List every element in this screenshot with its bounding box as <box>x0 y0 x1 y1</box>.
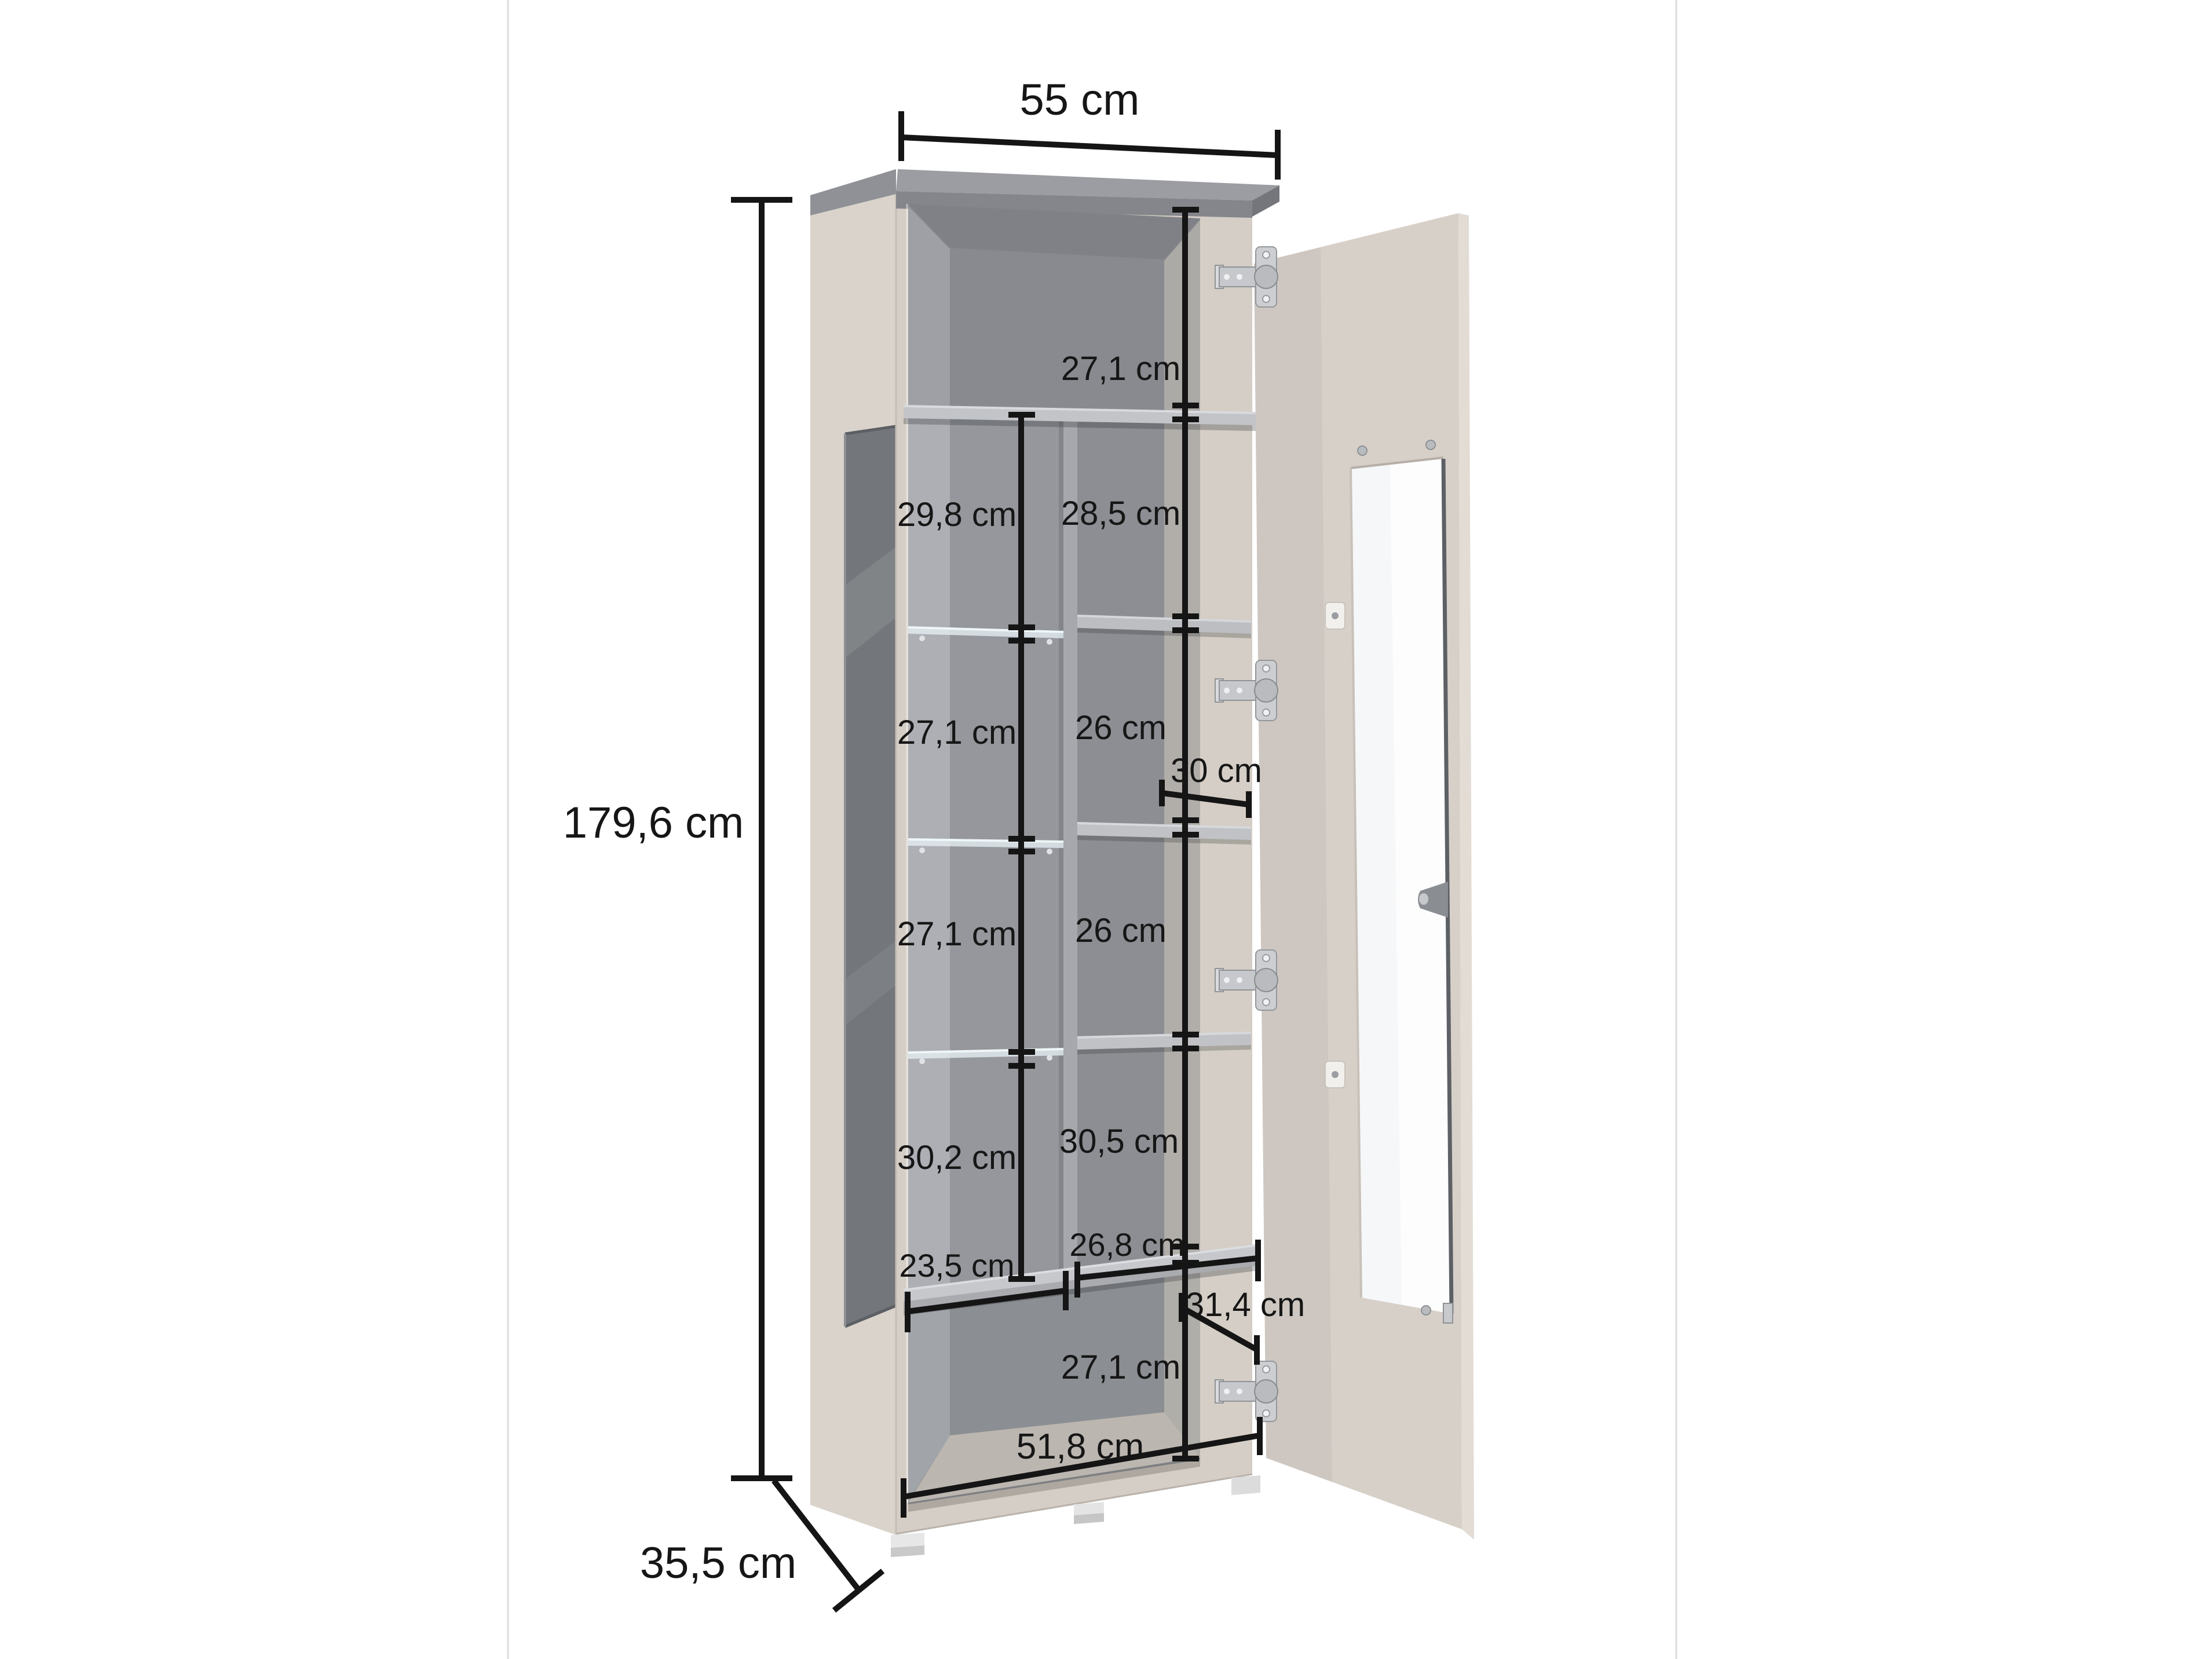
cabinet-door <box>1254 213 1474 1540</box>
label-left-section-3: 27,1 cm <box>897 915 1017 953</box>
label-total-depth: 35,5 cm <box>640 1539 796 1588</box>
glass-clamp <box>1443 1303 1453 1323</box>
side-glass-panel <box>845 426 896 1327</box>
door-screw <box>1426 440 1435 450</box>
label-total-height: 179,6 cm <box>563 798 744 847</box>
label-left-section-2: 27,1 cm <box>897 714 1017 751</box>
label-left-width: 23,5 cm <box>899 1247 1014 1284</box>
label-top-width: 55 cm <box>1020 75 1140 125</box>
label-bottom-width: 51,8 cm <box>1017 1427 1145 1467</box>
label-shelf-depth-upper: 30 cm <box>1171 752 1262 790</box>
label-left-section-1: 29,8 cm <box>897 496 1017 533</box>
label-shelf-depth-lower: 31,4 cm <box>1186 1286 1305 1324</box>
foot-rear-right <box>1231 1475 1260 1495</box>
cabinet <box>810 169 1279 1557</box>
label-right-section-1: 28,5 cm <box>1061 495 1180 532</box>
label-right-section-4: 30,5 cm <box>1059 1123 1179 1160</box>
label-right-section-3: 26 cm <box>1075 912 1167 949</box>
door-screw <box>1421 1306 1431 1315</box>
label-right-width: 26,8 cm <box>1069 1226 1184 1263</box>
label-left-section-4: 30,2 cm <box>897 1139 1017 1176</box>
door-screw <box>1358 446 1367 455</box>
label-top-section: 27,1 cm <box>1061 350 1180 388</box>
cabinet-dimension-diagram: 55 cm 179,6 cm 35,5 cm 27,1 cm 29,8 cm 2… <box>0 0 2212 1659</box>
diagram-stage: 55 cm 179,6 cm 35,5 cm 27,1 cm 29,8 cm 2… <box>0 0 2212 1659</box>
label-right-section-2: 26 cm <box>1075 709 1167 747</box>
label-bottom-section: 27,1 cm <box>1061 1349 1180 1386</box>
